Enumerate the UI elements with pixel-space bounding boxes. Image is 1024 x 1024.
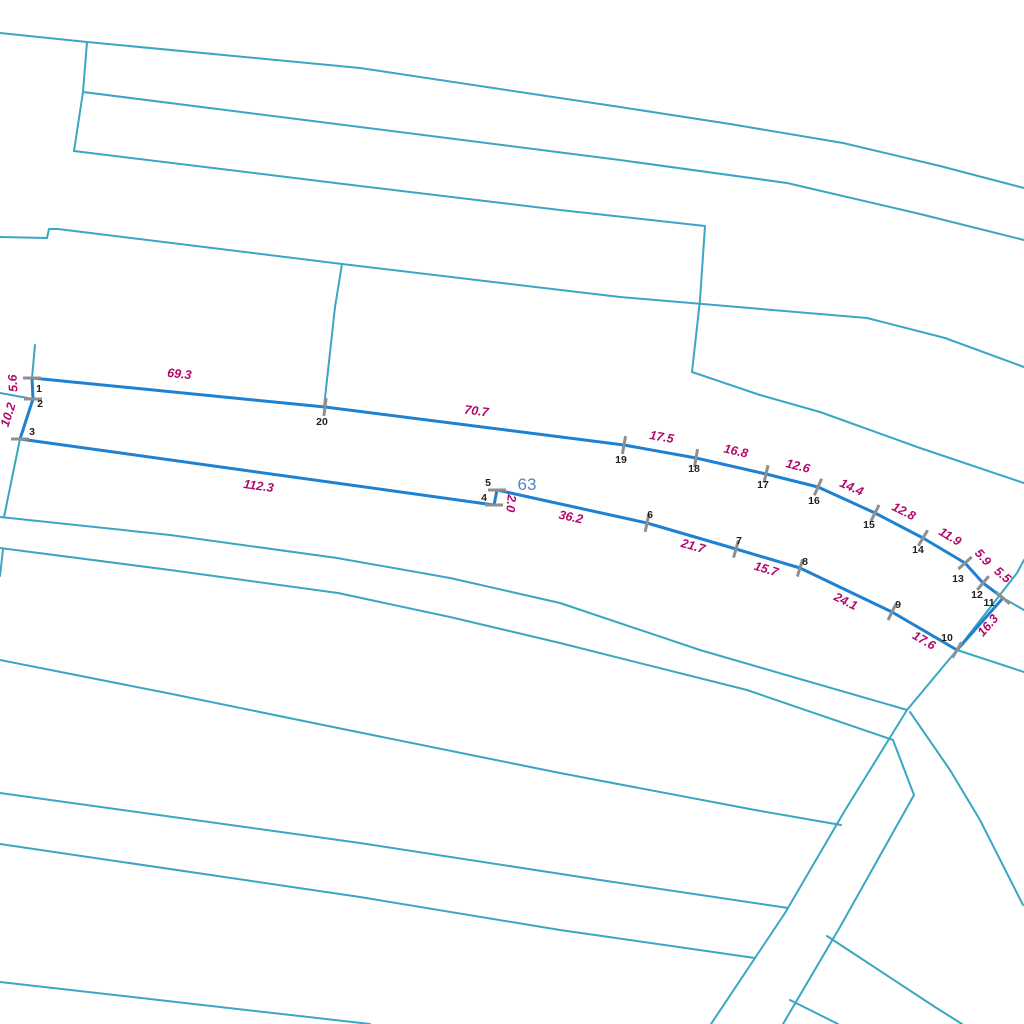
vertex-number-9: 9 <box>895 599 901 611</box>
edge-length-label-16.8: 16.8 <box>722 442 749 461</box>
cadastral-map[interactable]: 12345678910111213141516171819205.610.211… <box>0 0 1024 1024</box>
vertex-number-15: 15 <box>863 519 875 531</box>
edge-length-label-16.3: 16.3 <box>975 612 1002 640</box>
vertex-number-17: 17 <box>757 479 769 491</box>
background-parcel-line-stub-left-lower <box>0 549 3 576</box>
edge-length-label-70.7: 70.7 <box>464 403 491 420</box>
edge-length-label-5.9: 5.9 <box>972 546 994 568</box>
vertex-number-3: 3 <box>29 426 35 438</box>
edge-length-label-11.9: 11.9 <box>936 525 963 549</box>
edge-length-label-10.2: 10.2 <box>0 401 19 429</box>
edge-length-label-5.5: 5.5 <box>991 564 1014 587</box>
background-parcel-line-field-line-b <box>0 793 788 908</box>
background-parcel-line-spur-v10-right <box>957 650 1024 672</box>
vertex-number-13: 13 <box>952 573 964 585</box>
background-parcel-line-field-line-d <box>0 982 370 1024</box>
vertex-number-6: 6 <box>647 509 653 521</box>
vertex-number-16: 16 <box>808 495 820 507</box>
vertex-number-19: 19 <box>615 454 627 466</box>
vertex-number-20: 20 <box>316 416 328 428</box>
background-parcel-line-boundary-top-c <box>74 151 705 372</box>
map-canvas[interactable]: 12345678910111213141516171819205.610.211… <box>0 0 1024 1024</box>
vertex-number-2: 2 <box>37 398 43 410</box>
background-parcel-line-boundary-top-a <box>0 33 1024 188</box>
background-parcel-line-field-line-a <box>0 660 841 825</box>
background-parcel-line-boundary-stepped <box>0 229 1024 367</box>
edge-length-label-5.6: 5.6 <box>6 373 21 392</box>
background-parcel-line-connector-to-v20 <box>324 264 342 407</box>
background-parcel-line-road-branch-right-b <box>827 936 962 1024</box>
background-parcel-line-road-branch-right-a <box>910 712 1023 905</box>
edge-length-label-17.5: 17.5 <box>648 428 675 446</box>
vertex-number-7: 7 <box>736 535 742 547</box>
vertex-number-1: 1 <box>36 383 42 395</box>
background-parcel-line-field-line-c <box>0 844 755 958</box>
parcel-number-label: 63 <box>518 475 537 494</box>
background-parcel-line-road-branch-right-c <box>790 1000 838 1024</box>
edge-length-label-36.2: 36.2 <box>557 508 584 527</box>
vertex-number-8: 8 <box>802 556 808 568</box>
background-parcel-line-connector-top-left <box>74 42 87 151</box>
vertex-number-4: 4 <box>481 492 487 504</box>
edge-length-label-17.6: 17.6 <box>910 628 939 653</box>
background-parcel-line-road-lower-edge <box>0 548 914 1024</box>
vertex-number-18: 18 <box>688 463 700 475</box>
edge-length-label-112.3: 112.3 <box>243 477 275 495</box>
edge-length-label-12.8: 12.8 <box>890 500 918 524</box>
edge-length-label-69.3: 69.3 <box>167 366 193 382</box>
edge-length-label-12.6: 12.6 <box>784 456 812 476</box>
edge-length-label-14.4: 14.4 <box>838 476 866 499</box>
vertex-number-12: 12 <box>971 589 983 601</box>
background-parcel-line-road-upper-edge <box>0 517 907 1024</box>
edge-length-label-2.0: 2.0 <box>503 493 519 513</box>
vertex-number-5: 5 <box>485 477 491 489</box>
vertex-number-14: 14 <box>912 544 924 556</box>
selected-parcel-boundary[interactable] <box>20 378 1003 650</box>
vertex-number-11: 11 <box>983 597 994 609</box>
background-parcel-line-boundary-mid-right <box>692 372 1024 483</box>
vertex-tick-19 <box>622 436 625 454</box>
background-parcel-line-boundary-top-b <box>83 92 1024 240</box>
vertex-number-10: 10 <box>941 632 953 644</box>
